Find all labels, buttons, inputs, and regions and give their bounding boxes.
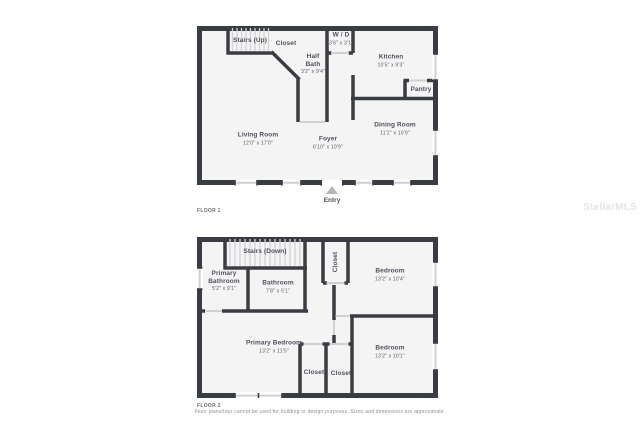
- room-label-living-room: Living Room 12'0" x 17'0": [238, 132, 278, 147]
- room-label-foyer: Foyer 6'10" x 10'9": [313, 136, 343, 151]
- floor1-tag: FLOOR 1: [197, 208, 221, 214]
- room-label-kitchen: Kitchen 10'5" x 9'3": [377, 54, 404, 69]
- room-label-bathroom: Bathroom 7'8" x 5'1": [262, 280, 294, 295]
- room-label-bedroom-bottom: Bedroom 13'2" x 10'1": [375, 345, 405, 360]
- entry-arrow-icon: [326, 186, 338, 194]
- room-label-dining-room: Dining Room 11'2" x 10'9": [374, 122, 416, 137]
- stellar-mls-watermark: StellarMLS: [583, 202, 637, 213]
- room-label-primary-bathroom: Primary Bathroom 5'2" x 9'1": [199, 270, 249, 292]
- room-label-primary-bedroom: Primary Bedroom 13'2" x 11'5": [246, 340, 302, 355]
- room-label-half-bath: Half Bath 3'2" x 9'4": [300, 53, 326, 75]
- disclaimer-text: Floor plans/tour cannot be used for buil…: [0, 409, 640, 415]
- room-label-closet-hall: Closet: [332, 252, 340, 272]
- entry-label: Entry: [324, 197, 341, 204]
- floor1-plan: [197, 26, 438, 186]
- room-label-wd: W / D 3'6" x 3'1": [329, 32, 353, 47]
- room-label-closet-right: Closet: [331, 370, 351, 378]
- room-label-closet-left: Closet: [304, 369, 324, 377]
- room-label-closet-f1: Closet: [276, 40, 296, 48]
- floor-plan-page: { "page": { "background": "#ffffff", "wa…: [0, 0, 640, 426]
- room-label-pantry: Pantry: [411, 86, 432, 94]
- room-label-stairs-up: Stairs (Up): [233, 37, 267, 45]
- room-label-bedroom-top: Bedroom 13'2" x 10'4": [375, 268, 405, 283]
- room-label-stairs-down: Stairs (Down): [243, 248, 286, 256]
